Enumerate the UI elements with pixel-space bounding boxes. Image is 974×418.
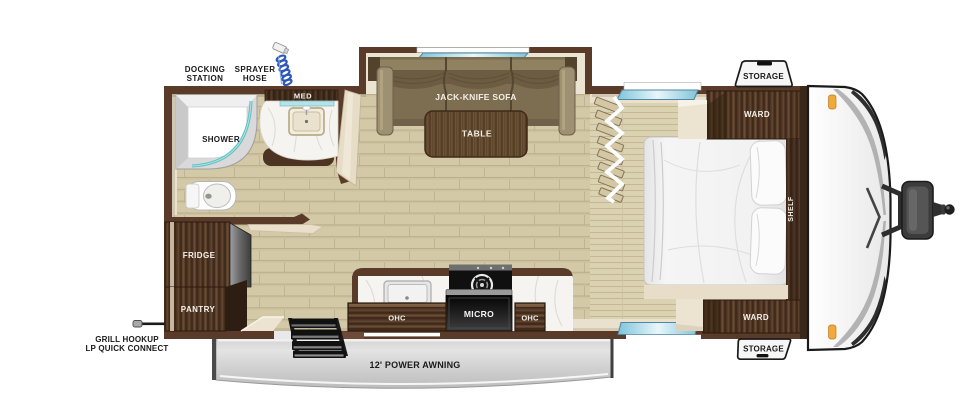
svg-text:OHC: OHC bbox=[521, 314, 539, 323]
svg-text:DOCKING: DOCKING bbox=[185, 65, 226, 74]
svg-text:SPRAYER: SPRAYER bbox=[235, 65, 276, 74]
svg-text:GRILL HOOKUP: GRILL HOOKUP bbox=[95, 335, 159, 344]
svg-text:MED: MED bbox=[294, 92, 312, 101]
svg-text:STATION: STATION bbox=[187, 74, 224, 83]
svg-text:LP QUICK CONNECT: LP QUICK CONNECT bbox=[85, 344, 168, 353]
svg-text:FRIDGE: FRIDGE bbox=[183, 251, 216, 260]
svg-text:MICRO: MICRO bbox=[464, 309, 494, 319]
svg-text:STORAGE: STORAGE bbox=[743, 72, 784, 81]
svg-text:OHC: OHC bbox=[388, 314, 406, 323]
svg-text:SHELF: SHELF bbox=[788, 196, 795, 222]
svg-text:WARD: WARD bbox=[744, 110, 770, 119]
svg-text:JACK-KNIFE SOFA: JACK-KNIFE SOFA bbox=[435, 92, 516, 102]
svg-text:SHOWER: SHOWER bbox=[202, 135, 240, 144]
svg-text:WARD: WARD bbox=[743, 313, 769, 322]
svg-text:STORAGE: STORAGE bbox=[743, 345, 784, 354]
svg-text:PANTRY: PANTRY bbox=[181, 305, 216, 314]
svg-text:HOSE: HOSE bbox=[243, 74, 268, 83]
svg-text:12' POWER AWNING: 12' POWER AWNING bbox=[369, 360, 460, 370]
svg-text:TABLE: TABLE bbox=[462, 129, 492, 139]
